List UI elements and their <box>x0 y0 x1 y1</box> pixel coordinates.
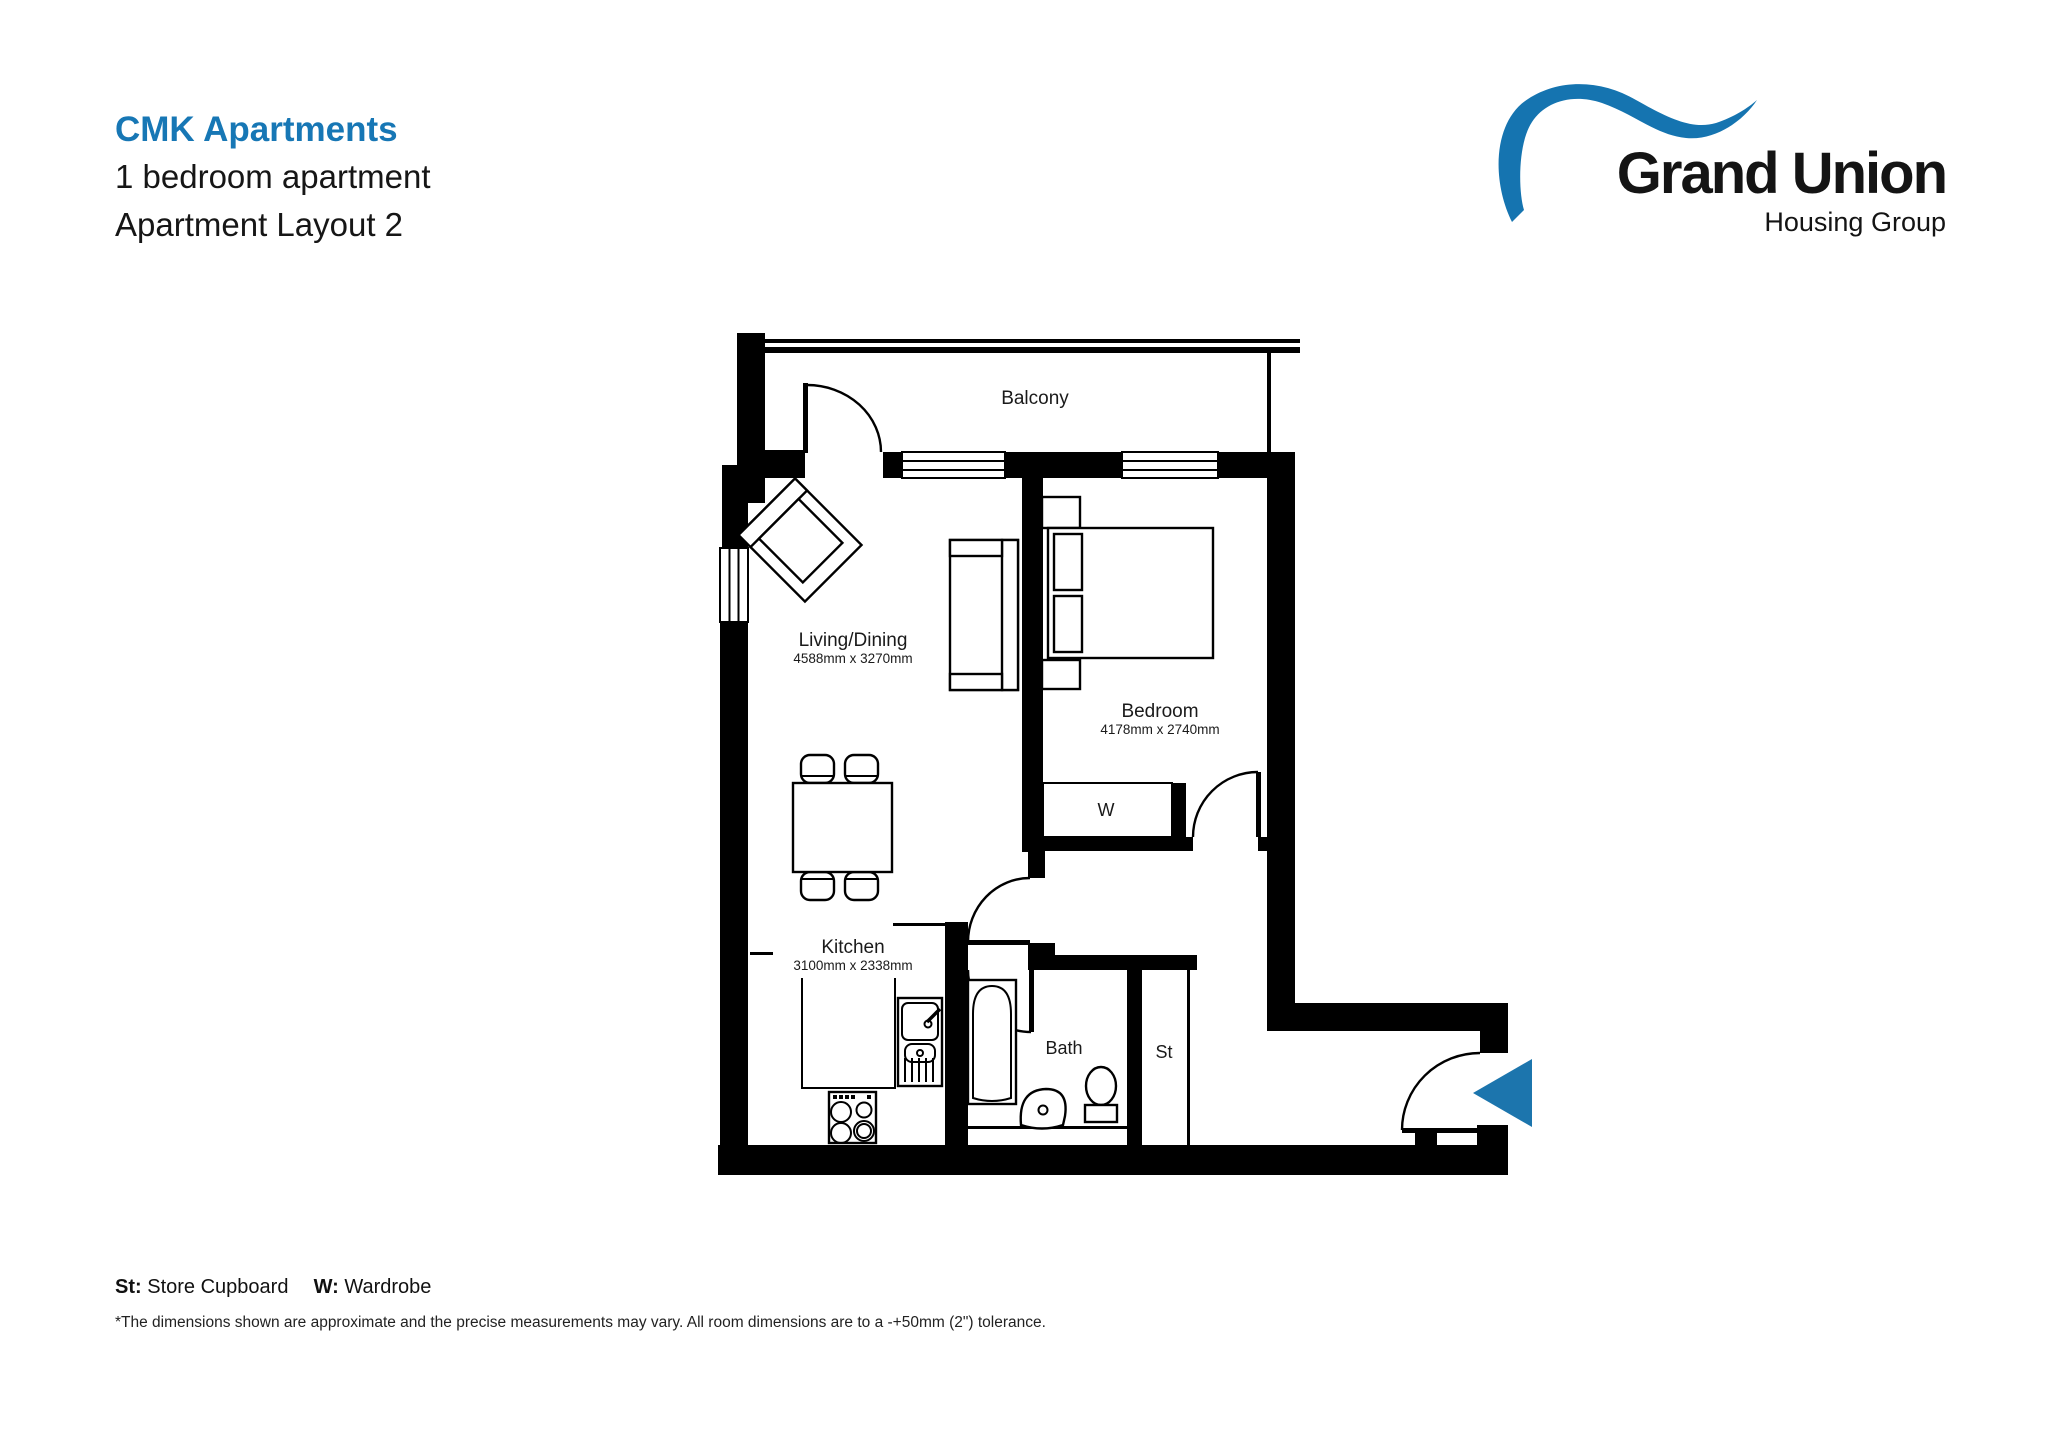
living-window <box>902 452 1005 478</box>
wardrobe-label: W <box>1098 800 1115 821</box>
stove <box>829 1092 876 1143</box>
floorplan-page: CMK Apartments 1 bedroom apartment Apart… <box>0 0 2048 1447</box>
store-cupboard-label: St <box>1155 1042 1172 1063</box>
wall-segment <box>1172 783 1186 837</box>
walls <box>718 333 1508 1175</box>
living-room-dims: 4588mm x 3270mm <box>793 651 912 666</box>
toilet <box>1085 1067 1117 1122</box>
wall-segment <box>1005 452 1122 478</box>
left-window <box>720 548 748 622</box>
wall-segment <box>1477 1125 1508 1175</box>
disclaimer-text: *The dimensions shown are approximate an… <box>115 1314 1046 1332</box>
wall-segment <box>1028 851 1045 878</box>
wall-segment <box>720 622 748 1145</box>
wall-segment <box>718 1145 1508 1175</box>
sofa <box>950 540 1018 690</box>
kitchen-dims: 3100mm x 2338mm <box>793 958 912 973</box>
floor-plan <box>0 0 2048 1447</box>
entrance-arrow-icon <box>1473 1059 1532 1127</box>
kitchen-label: Kitchen <box>821 937 884 959</box>
wall-segment <box>1267 452 1295 1005</box>
wall-segment <box>1258 837 1267 851</box>
legend-w-label: Wardrobe <box>344 1276 431 1298</box>
legend-st-label: Store Cupboard <box>147 1276 288 1298</box>
legend-st-abbr: St: <box>115 1276 142 1298</box>
entrance-door <box>1402 1053 1480 1133</box>
wall-segment <box>1055 955 1197 970</box>
kitchen-counter <box>802 978 895 1088</box>
wall-segment <box>1022 478 1043 852</box>
wall-segment <box>1480 1031 1508 1053</box>
wall-segment <box>1028 943 1055 970</box>
kitchen-sink <box>898 998 942 1086</box>
wall-segment <box>1127 970 1142 1145</box>
bedroom-door <box>1193 772 1261 837</box>
basin <box>1021 1089 1066 1129</box>
balcony-label: Balcony <box>1001 388 1069 410</box>
bedroom-dims: 4178mm x 2740mm <box>1100 722 1219 737</box>
balcony-door <box>803 383 881 453</box>
wall-segment <box>748 450 805 478</box>
dining-table <box>793 755 892 900</box>
bed <box>1042 497 1213 689</box>
wall-segment <box>1267 1003 1508 1031</box>
wall-segment <box>883 452 902 478</box>
bedroom-window <box>1122 452 1218 478</box>
wall-segment <box>1415 1133 1437 1145</box>
legend-w-abbr: W: <box>314 1276 339 1298</box>
hall-door <box>968 878 1030 945</box>
wall-segment <box>1022 837 1193 851</box>
legend: St: Store Cupboard W: Wardrobe <box>115 1276 431 1299</box>
bath-label: Bath <box>1045 1038 1082 1059</box>
bedroom-label: Bedroom <box>1121 701 1198 723</box>
living-room-label: Living/Dining <box>799 630 908 652</box>
bathtub <box>968 980 1016 1104</box>
wall-segment <box>945 922 968 1145</box>
